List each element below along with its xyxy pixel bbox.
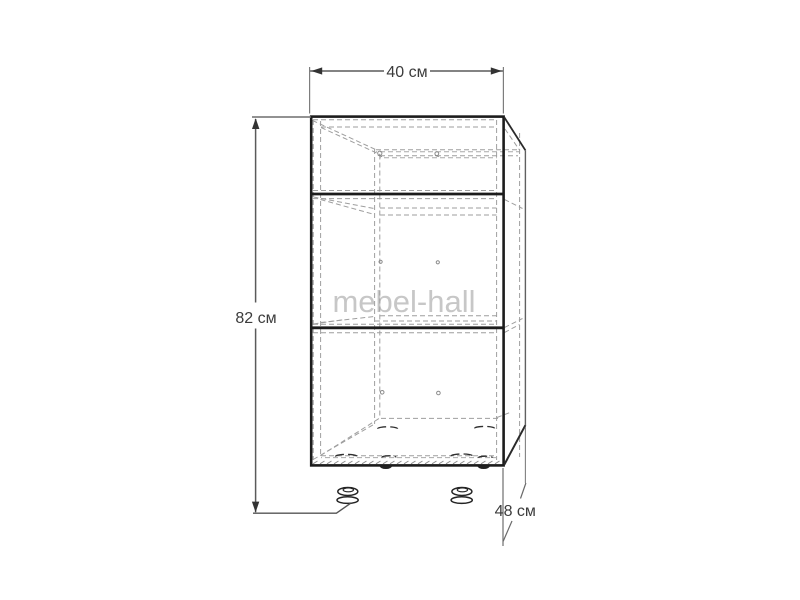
svg-text:mebel-hall: mebel-hall bbox=[332, 284, 475, 319]
svg-text:82 см: 82 см bbox=[235, 310, 276, 327]
svg-text:48 см: 48 см bbox=[495, 503, 536, 520]
svg-text:40 см: 40 см bbox=[386, 64, 427, 81]
